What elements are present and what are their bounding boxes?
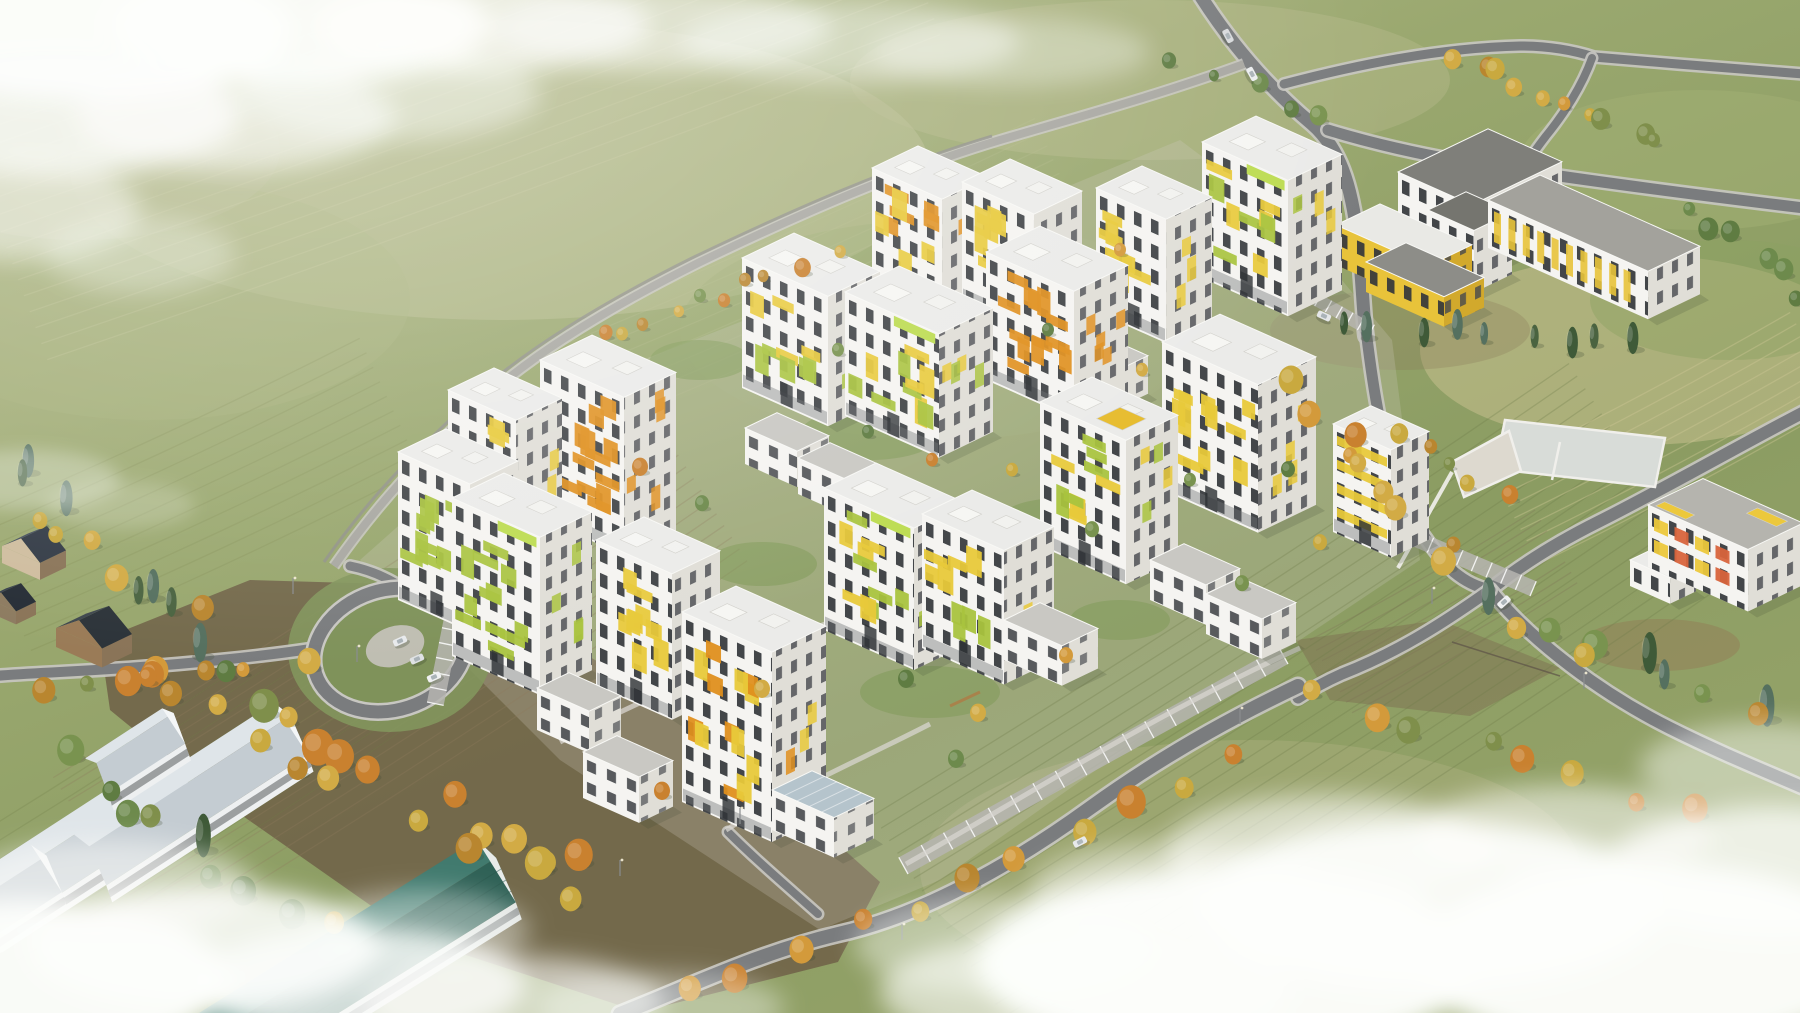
cloud-puff — [1415, 786, 1715, 878]
aerial-residential-complex-render — [0, 0, 1800, 1013]
clouds — [0, 0, 1800, 1013]
cloud-puff — [240, 50, 540, 140]
aerial-render-canvas — [0, 0, 1800, 1013]
cloud-puff — [45, 217, 235, 293]
cloud-puff — [45, 481, 195, 529]
cloud-puff — [1030, 842, 1330, 938]
cloud-puff — [310, 890, 530, 970]
cloud-puff — [870, 18, 1150, 86]
